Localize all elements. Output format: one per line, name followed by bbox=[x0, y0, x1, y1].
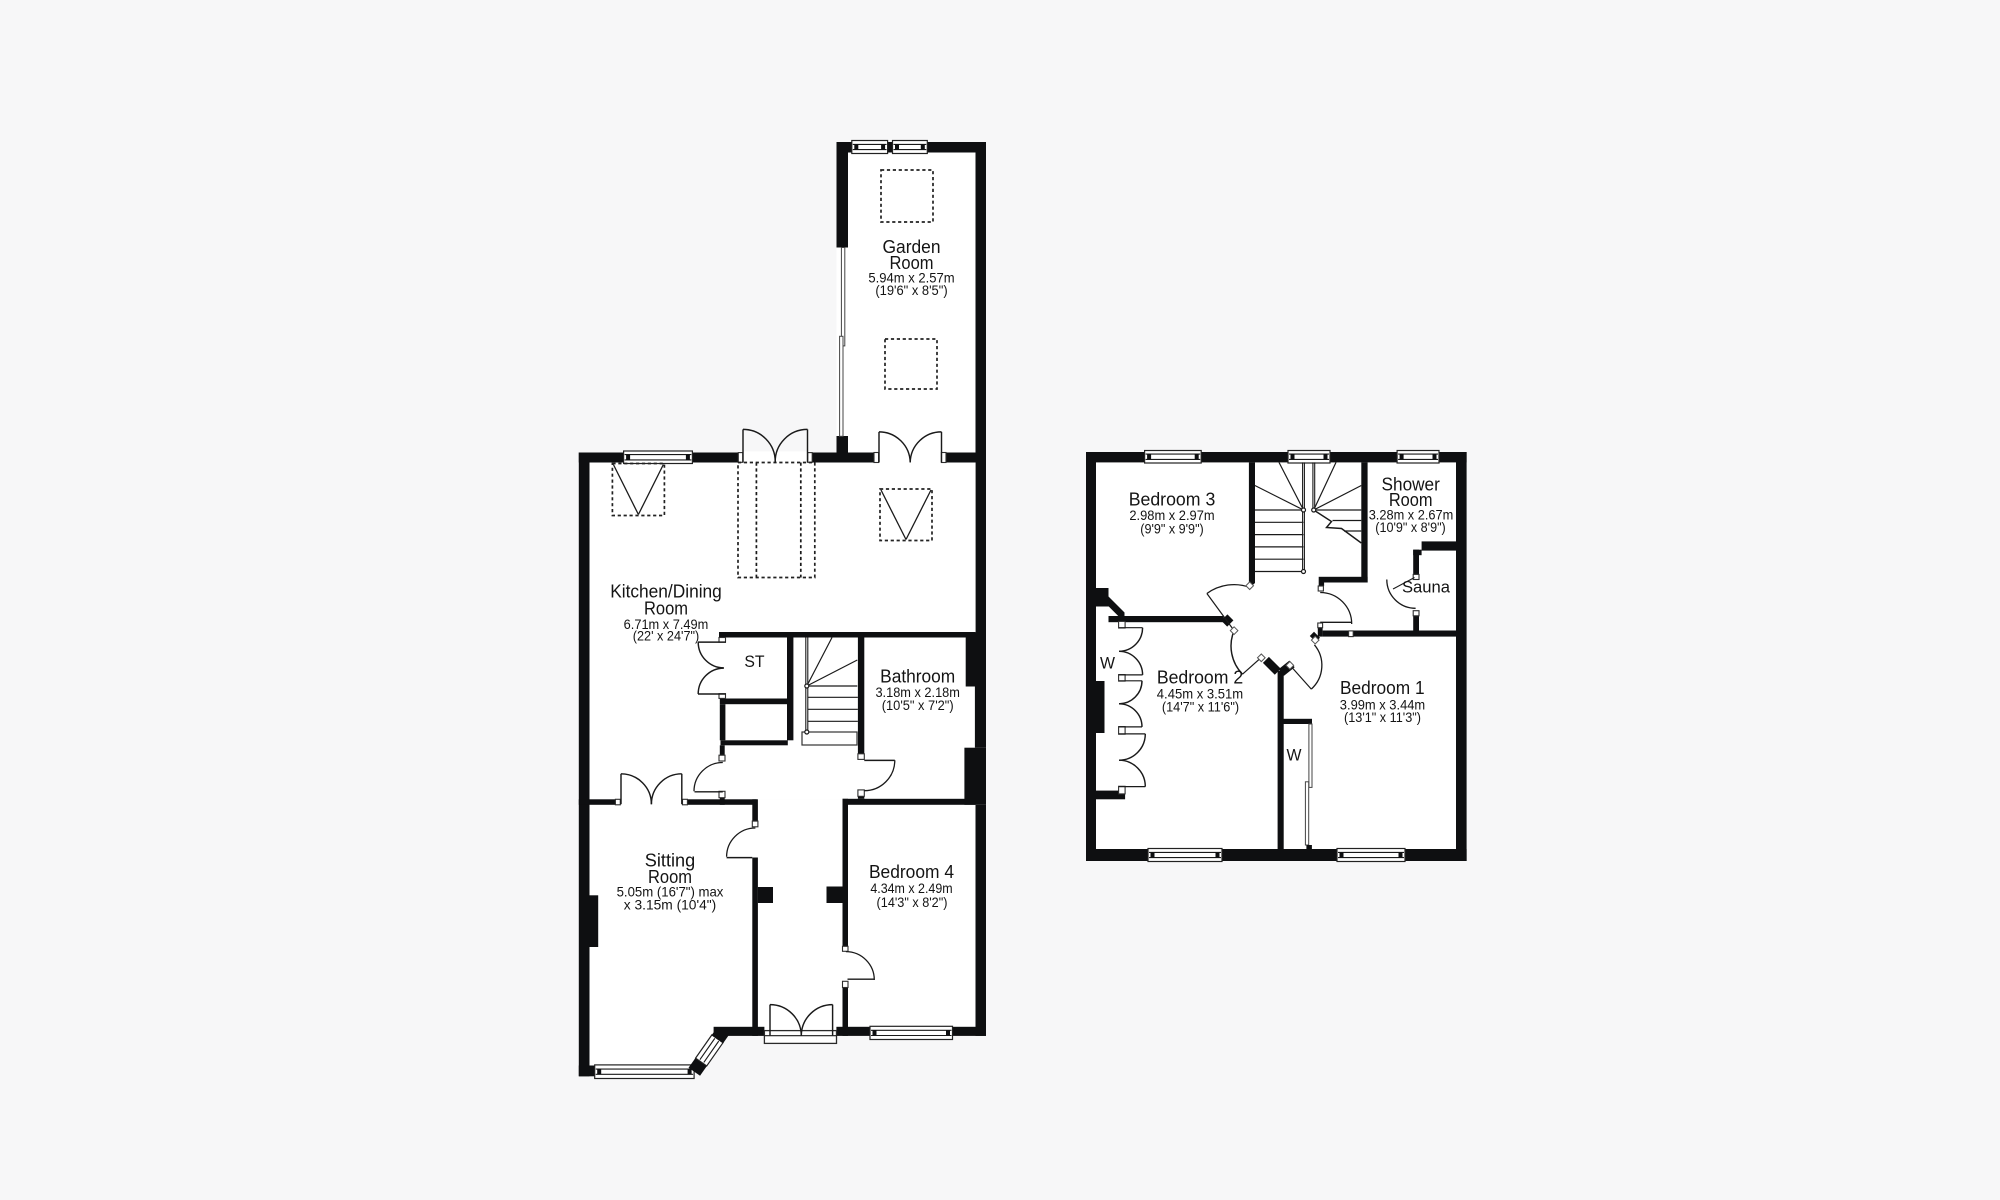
svg-text:Sauna: Sauna bbox=[1402, 577, 1451, 596]
svg-text:(9'9" x 9'9"): (9'9" x 9'9") bbox=[1140, 521, 1204, 537]
svg-text:(19'6" x 8'5"): (19'6" x 8'5") bbox=[875, 282, 947, 298]
svg-text:(10'9" x 8'9"): (10'9" x 8'9") bbox=[1375, 519, 1446, 535]
svg-text:(13'1" x 11'3"): (13'1" x 11'3") bbox=[1344, 709, 1421, 725]
svg-text:x 3.15m (10'4"): x 3.15m (10'4") bbox=[624, 897, 716, 913]
svg-text:Bedroom 1: Bedroom 1 bbox=[1340, 678, 1425, 698]
svg-text:W: W bbox=[1100, 654, 1115, 673]
svg-text:Bedroom 4: Bedroom 4 bbox=[869, 862, 954, 882]
svg-text:ST: ST bbox=[744, 652, 764, 671]
svg-text:(22' x 24'7"): (22' x 24'7") bbox=[633, 628, 700, 644]
svg-text:(14'7" x 11'6"): (14'7" x 11'6") bbox=[1162, 699, 1239, 715]
svg-text:W: W bbox=[1287, 746, 1302, 765]
svg-text:(10'5" x 7'2"): (10'5" x 7'2") bbox=[882, 697, 954, 713]
svg-text:(14'3" x 8'2"): (14'3" x 8'2") bbox=[877, 894, 948, 910]
